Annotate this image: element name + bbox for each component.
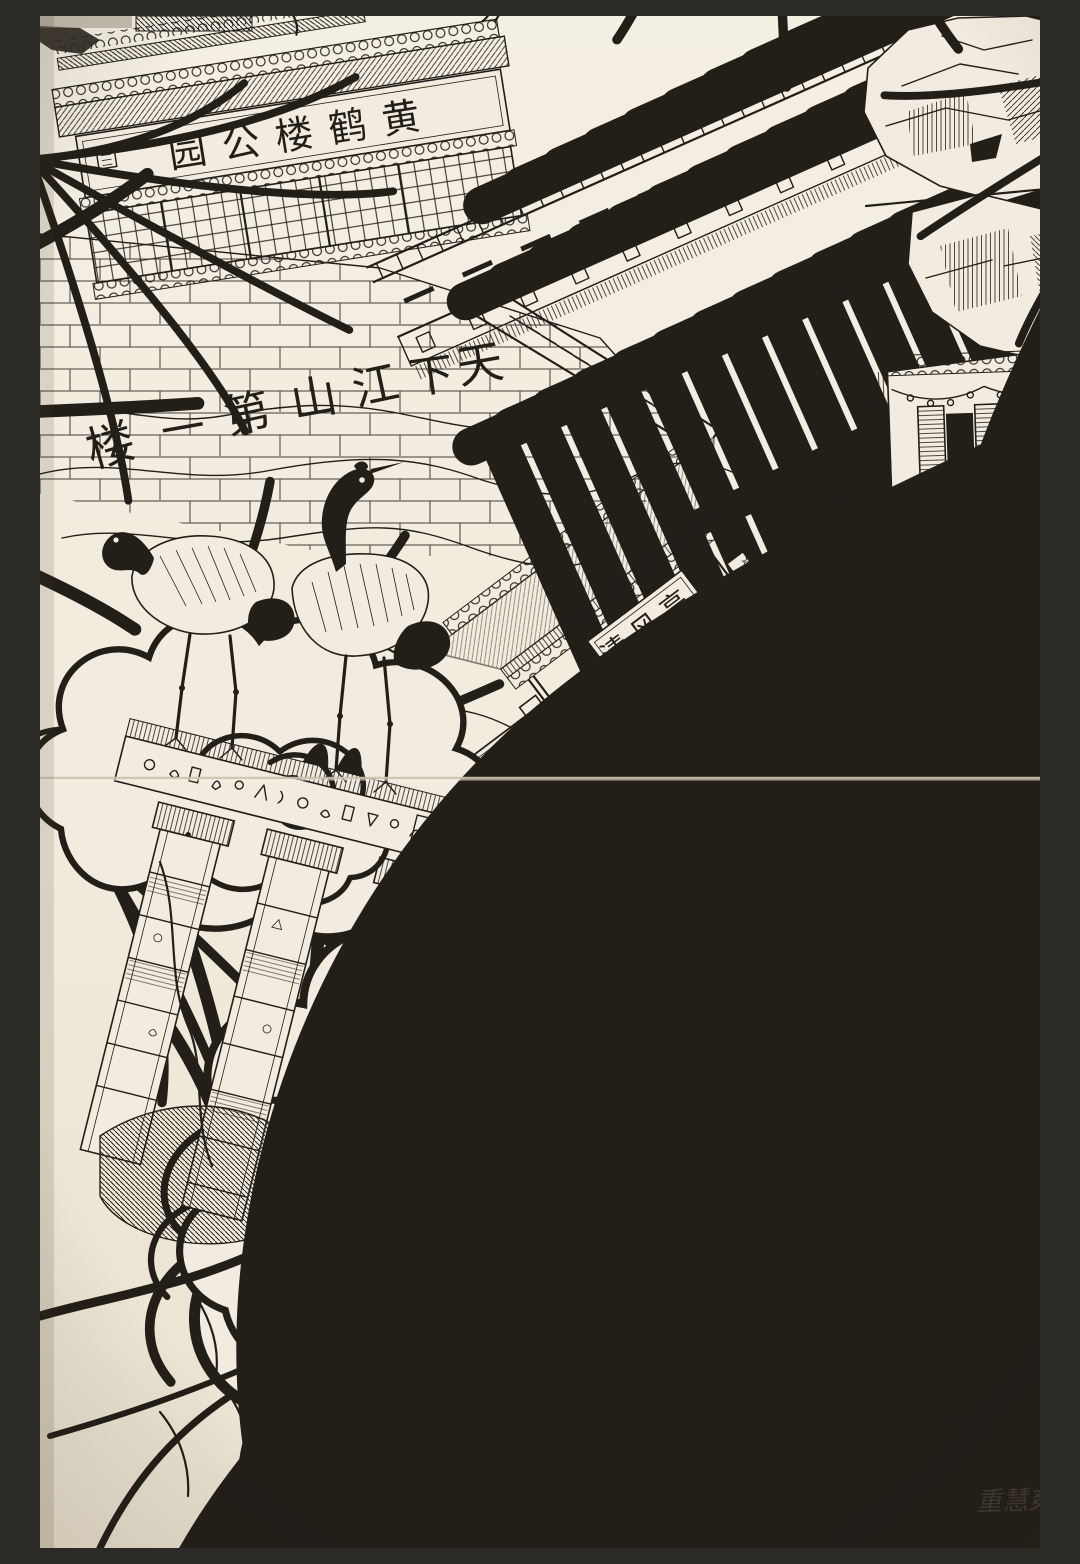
signature: 重慧爽 4.26 — [975, 1483, 1040, 1519]
paper-artifacts — [40, 16, 1040, 1548]
ink-drawing: 园公楼鹤黄 — [40, 16, 1040, 1548]
signature-name: 重慧爽 — [975, 1485, 1040, 1518]
artwork: 园公楼鹤黄 — [40, 16, 1040, 1548]
